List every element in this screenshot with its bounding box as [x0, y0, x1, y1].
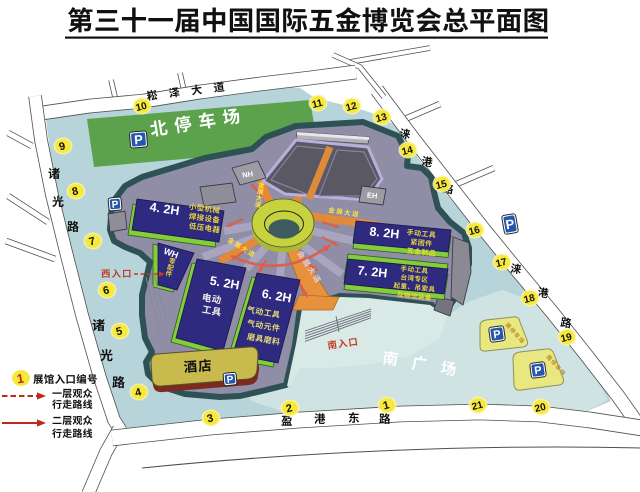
svg-text:EH: EH — [367, 191, 378, 201]
svg-text:P: P — [134, 132, 144, 148]
svg-text:P: P — [226, 374, 234, 386]
svg-text:P: P — [111, 199, 119, 211]
svg-text:NH: NH — [242, 169, 254, 179]
